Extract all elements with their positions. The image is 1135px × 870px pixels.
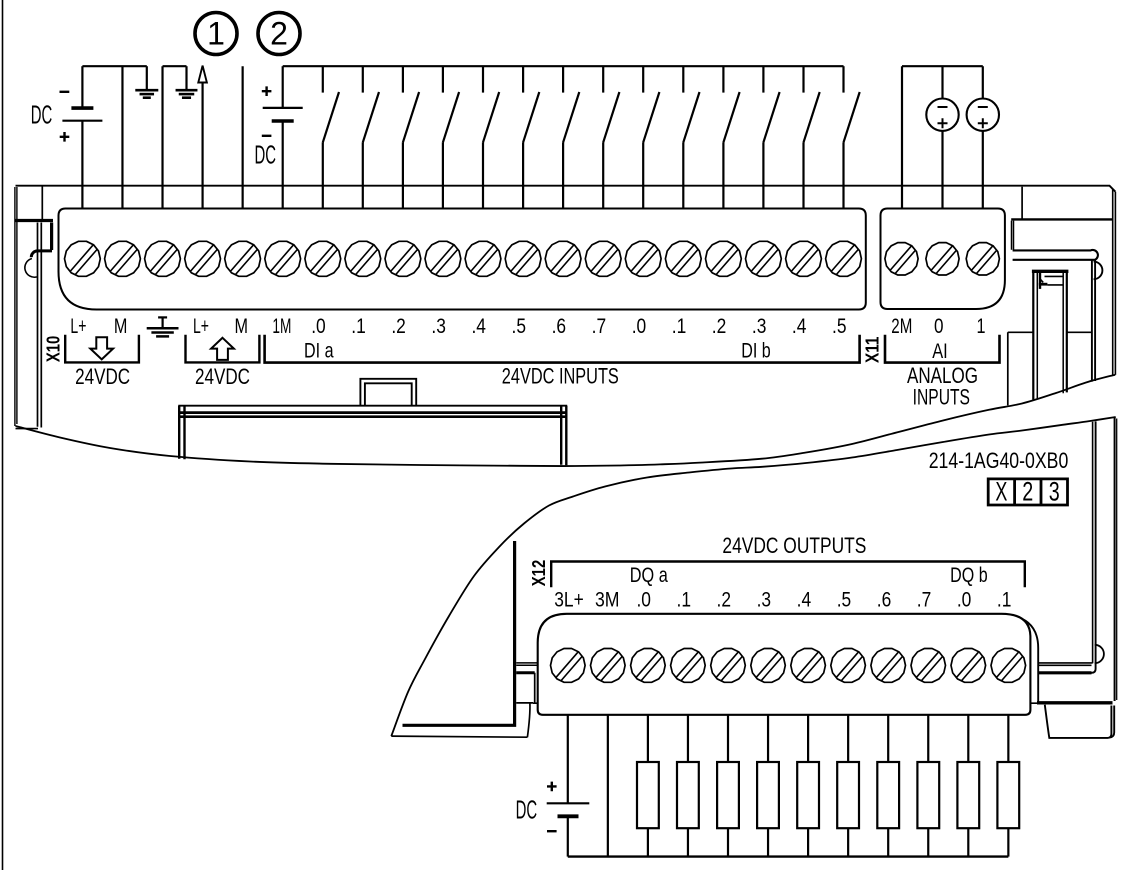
svg-text:.1: .1 bbox=[997, 588, 1012, 612]
svg-text:3M: 3M bbox=[595, 588, 620, 612]
svg-text:3L+: 3L+ bbox=[554, 588, 584, 612]
svg-text:1: 1 bbox=[977, 314, 986, 338]
svg-text:.2: .2 bbox=[712, 314, 727, 338]
svg-text:.6: .6 bbox=[877, 588, 892, 612]
svg-text:.0: .0 bbox=[632, 314, 647, 338]
svg-text:.3: .3 bbox=[757, 588, 772, 612]
svg-text:.0: .0 bbox=[957, 588, 972, 612]
svg-text:.7: .7 bbox=[917, 588, 932, 612]
svg-text:2: 2 bbox=[270, 15, 288, 51]
svg-text:.7: .7 bbox=[592, 314, 607, 338]
svg-text:.2: .2 bbox=[717, 588, 732, 612]
svg-text:.4: .4 bbox=[797, 588, 812, 612]
svg-text:X10: X10 bbox=[43, 336, 63, 363]
svg-text:DI a: DI a bbox=[304, 339, 334, 363]
svg-text:M: M bbox=[234, 314, 248, 338]
svg-text:1M: 1M bbox=[272, 314, 291, 338]
svg-text:DC: DC bbox=[516, 796, 538, 824]
svg-text:.5: .5 bbox=[512, 314, 527, 338]
svg-text:3: 3 bbox=[1049, 476, 1060, 506]
svg-text:.0: .0 bbox=[311, 314, 326, 338]
svg-text:DC: DC bbox=[254, 142, 276, 170]
svg-text:L+: L+ bbox=[70, 314, 86, 338]
svg-text:24VDC: 24VDC bbox=[75, 364, 130, 389]
svg-text:.5: .5 bbox=[837, 588, 852, 612]
svg-text:.1: .1 bbox=[672, 314, 687, 338]
svg-text:X12: X12 bbox=[529, 560, 549, 587]
svg-text:.1: .1 bbox=[677, 588, 692, 612]
svg-text:24VDC: 24VDC bbox=[195, 364, 250, 389]
svg-text:L+: L+ bbox=[193, 314, 209, 338]
svg-text:AI: AI bbox=[932, 339, 948, 363]
svg-text:24VDC OUTPUTS: 24VDC OUTPUTS bbox=[722, 533, 866, 558]
svg-text:.3: .3 bbox=[431, 314, 446, 338]
svg-text:2M: 2M bbox=[891, 314, 912, 338]
svg-text:.6: .6 bbox=[552, 314, 567, 338]
svg-text:DI b: DI b bbox=[741, 339, 771, 363]
svg-text:2: 2 bbox=[1022, 476, 1033, 506]
svg-text:24VDC INPUTS: 24VDC INPUTS bbox=[502, 363, 619, 388]
svg-text:1: 1 bbox=[207, 15, 225, 51]
svg-text:.4: .4 bbox=[471, 314, 486, 338]
svg-text:.4: .4 bbox=[792, 314, 807, 338]
svg-text:.1: .1 bbox=[351, 314, 366, 338]
svg-text:.0: .0 bbox=[636, 588, 651, 612]
svg-text:X: X bbox=[995, 476, 1007, 506]
svg-text:DC: DC bbox=[31, 101, 53, 129]
svg-text:X11: X11 bbox=[862, 337, 882, 364]
svg-text:0: 0 bbox=[934, 314, 944, 338]
svg-text:INPUTS: INPUTS bbox=[913, 385, 970, 410]
svg-text:.5: .5 bbox=[832, 314, 847, 338]
svg-text:.3: .3 bbox=[752, 314, 767, 338]
svg-text:DQ b: DQ b bbox=[950, 563, 988, 587]
svg-text:DQ a: DQ a bbox=[630, 563, 668, 587]
svg-text:M: M bbox=[114, 314, 128, 338]
svg-text:214-1AG40-0XB0: 214-1AG40-0XB0 bbox=[929, 448, 1069, 473]
svg-text:.2: .2 bbox=[391, 314, 406, 338]
